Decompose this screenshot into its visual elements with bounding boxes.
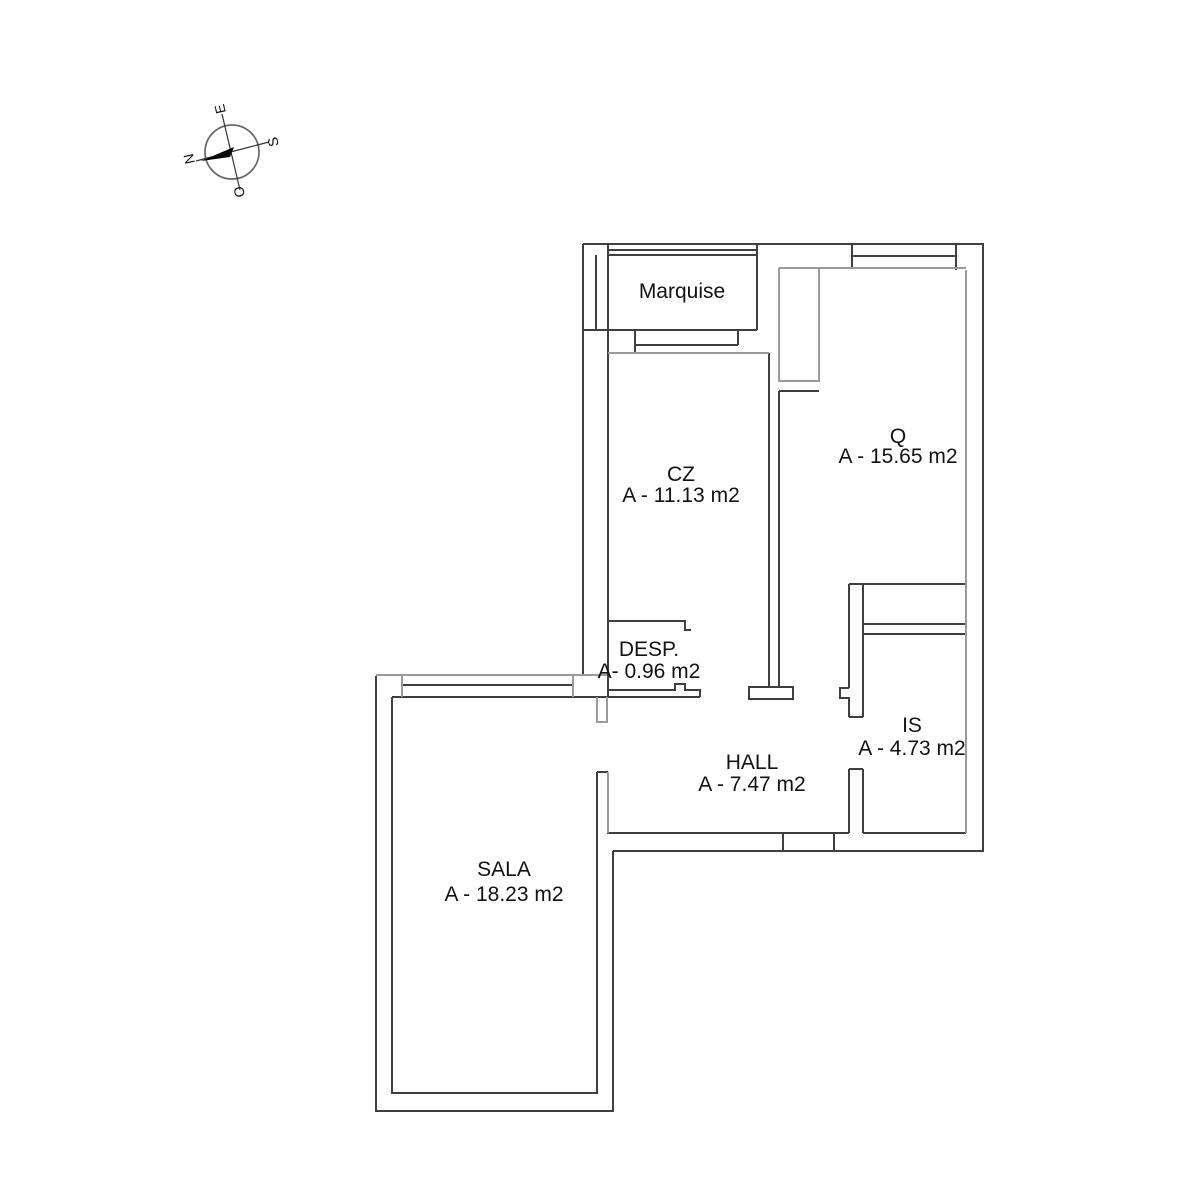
room-labels: Marquise CZ A - 11.13 m2 Q A - 15.65 m2 …	[444, 280, 965, 906]
sala-hall-wall-stub	[597, 697, 607, 722]
room-area-sala: A - 18.23 m2	[444, 883, 563, 906]
room-area-q: A - 15.65 m2	[838, 445, 957, 468]
q-window	[852, 244, 956, 270]
q-shaft	[779, 268, 819, 381]
compass-label-e: E	[211, 103, 229, 116]
compass-rose: E N S O	[180, 103, 282, 199]
room-label-marquise: Marquise	[639, 280, 725, 303]
desp-bottom-wall	[607, 684, 700, 697]
compass-label-n: N	[180, 152, 198, 165]
compass-label-s: S	[264, 136, 282, 149]
compass-label-o: O	[230, 185, 248, 199]
floor-plan-svg: E N S O	[0, 0, 1200, 1200]
cz-q-wall-foot	[749, 687, 793, 699]
is-wall-lower-stub	[849, 769, 863, 833]
room-label-hall: HALL	[726, 751, 779, 774]
room-label-desp: DESP.	[619, 638, 679, 661]
cz-q-wall	[769, 353, 779, 687]
room-label-cz: CZ	[667, 463, 695, 486]
room-label-sala: SALA	[477, 858, 531, 881]
floor-plan-canvas: E N S O	[0, 0, 1200, 1200]
desp-top-wall	[608, 621, 691, 630]
room-area-desp: A- 0.96 m2	[598, 660, 701, 683]
room-area-is: A - 4.73 m2	[858, 737, 965, 760]
room-label-is: IS	[902, 714, 922, 737]
room-area-cz: A - 11.13 m2	[622, 484, 740, 507]
cz-window	[635, 330, 738, 353]
is-wall-notch	[840, 688, 849, 717]
entry-door-jambs	[783, 833, 834, 851]
room-area-hall: A - 7.47 m2	[698, 773, 805, 796]
